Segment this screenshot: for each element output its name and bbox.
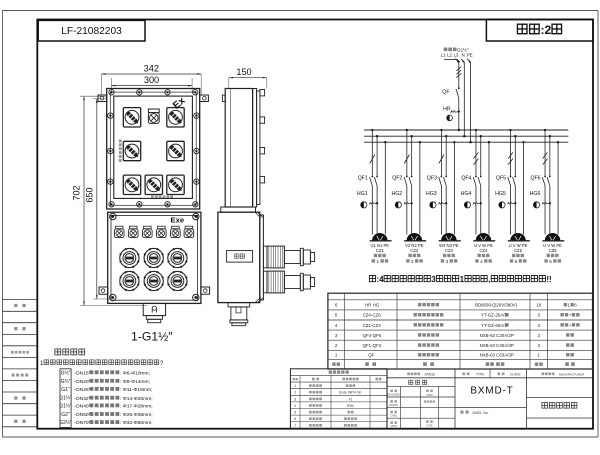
svg-text:BXMD-T: BXMD-T xyxy=(470,386,513,397)
svg-text:MANUFACTURER: MANUFACTURER xyxy=(559,372,585,376)
svg-text:5: 5 xyxy=(294,411,296,415)
svg-text:4: 4 xyxy=(294,404,296,408)
svg-text:G¾″: G¾″ xyxy=(61,379,71,385)
svg-text:QF3: QF3 xyxy=(427,175,437,181)
svg-text:1: 1 xyxy=(294,384,296,388)
svg-text:-DN20″: -DN20″ xyxy=(75,379,91,385)
svg-text:QF4-QF6: QF4-QF6 xyxy=(363,333,382,338)
svg-text:2: 2 xyxy=(294,391,296,395)
svg-text:: Φ11-Φ18mm;: : Φ11-Φ18mm; xyxy=(120,387,152,393)
svg-text:HG5: HG5 xyxy=(495,191,506,197)
svg-text:QF: QF xyxy=(368,353,374,358)
svg-text:DESIGNED: DESIGNED xyxy=(387,393,400,396)
svg-text::4: :4 xyxy=(377,275,385,284)
svg-text:QF4: QF4 xyxy=(461,175,471,181)
svg-text:300: 300 xyxy=(144,75,159,85)
svg-text:G½″: G½″ xyxy=(61,369,71,376)
svg-text:YT-GZ-25A/3: YT-GZ-25A/3 xyxy=(481,313,507,318)
svg-text:CZ4: CZ4 xyxy=(479,248,488,253)
svg-text:L3: L3 xyxy=(454,53,459,58)
svg-text:HG3: HG3 xyxy=(426,191,437,197)
svg-text:,: , xyxy=(488,275,490,284)
svg-text:1: 1 xyxy=(460,275,465,284)
svg-text:150: 150 xyxy=(236,67,251,77)
svg-text:!!: !! xyxy=(546,275,551,284)
svg-text:QF: QF xyxy=(442,89,449,95)
svg-text:16: 16 xyxy=(536,303,541,308)
svg-text:G2½″: G2½″ xyxy=(59,419,72,426)
svg-text:CZ6: CZ6 xyxy=(549,248,558,253)
svg-text:NXB-63 C40A/3P: NXB-63 C40A/3P xyxy=(480,343,514,348)
svg-text:: Φ14-Φ25mm;: : Φ14-Φ25mm; xyxy=(120,396,153,402)
svg-text:L2: L2 xyxy=(447,53,452,58)
svg-text:-DN15″: -DN15″ xyxy=(75,370,91,376)
svg-text:-DN40″: -DN40″ xyxy=(75,404,91,410)
svg-text:HG6: HG6 xyxy=(530,191,541,197)
svg-text:QF2: QF2 xyxy=(392,175,402,181)
svg-text:G1¼″: G1¼″ xyxy=(59,396,72,402)
svg-text:CLASS: CLASS xyxy=(510,372,520,376)
svg-text:HR HG: HR HG xyxy=(365,303,380,308)
svg-text:-DN50″: -DN50″ xyxy=(75,412,91,418)
svg-text:YT-GZ-60A/4: YT-GZ-60A/4 xyxy=(481,323,507,328)
svg-text:CHKD: CHKD xyxy=(390,415,397,418)
svg-text:G2″: G2″ xyxy=(61,412,70,418)
svg-text:NXB-63 C20A/2P: NXB-63 C20A/2P xyxy=(480,333,514,338)
svg-text:6: 6 xyxy=(294,417,296,421)
svg-text:BD8030-(220V/380V): BD8030-(220V/380V) xyxy=(475,303,518,308)
svg-text:APPD: APPD xyxy=(390,425,397,428)
svg-text:CZ1-CZ3: CZ1-CZ3 xyxy=(363,323,382,328)
svg-text:342: 342 xyxy=(144,64,159,74)
svg-text:+: + xyxy=(569,313,572,318)
svg-text:-DN25″: -DN25″ xyxy=(75,387,91,393)
svg-text:: Φ9-Φ14mm;: : Φ9-Φ14mm; xyxy=(120,379,150,385)
svg-text:HG2: HG2 xyxy=(391,191,402,197)
svg-text:1-G1½″: 1-G1½″ xyxy=(131,330,173,344)
svg-text:+: + xyxy=(569,323,572,328)
svg-text:Exde IIBT4 Gb: Exde IIBT4 Gb xyxy=(339,391,361,395)
svg-text:7: 7 xyxy=(294,424,296,428)
svg-text:NXB-63 C63A/3P: NXB-63 C63A/3P xyxy=(480,353,514,358)
svg-text:HR: HR xyxy=(443,107,451,113)
svg-text:CZ2: CZ2 xyxy=(410,248,419,253)
svg-text:STAGE: STAGE xyxy=(425,372,436,376)
svg-text:DRAWN: DRAWN xyxy=(389,404,398,407)
svg-text:HG4: HG4 xyxy=(461,191,472,197)
svg-text:650: 650 xyxy=(84,187,94,202)
svg-text:APPR: APPR xyxy=(426,394,433,397)
svg-text:CZ1: CZ1 xyxy=(376,248,385,253)
svg-text:CZ4-CZ6: CZ4-CZ6 xyxy=(363,313,382,318)
svg-text:: Φ25-Φ38mm;: : Φ25-Φ38mm; xyxy=(120,412,153,418)
svg-text:IP54: IP54 xyxy=(347,404,354,408)
svg-text:G1½″: G1½″ xyxy=(457,46,469,52)
svg-text:: Φ6-Φ10mm;: : Φ6-Φ10mm; xyxy=(120,370,150,376)
svg-text:Exe: Exe xyxy=(171,216,185,225)
svg-text:QF6: QF6 xyxy=(530,175,540,181)
svg-text:: Φ17-Φ28mm;: : Φ17-Φ28mm; xyxy=(120,404,153,410)
svg-text:L1: L1 xyxy=(441,53,446,58)
svg-text:-DN32″: -DN32″ xyxy=(75,396,91,402)
svg-text:QF1-QF3: QF1-QF3 xyxy=(363,343,382,348)
svg-text:CZ3: CZ3 xyxy=(445,248,454,253)
svg-text::2: :2 xyxy=(541,23,552,37)
svg-text:: Φ32-Φ50mm;: : Φ32-Φ50mm; xyxy=(120,420,153,426)
svg-text:QF1: QF1 xyxy=(358,175,368,181)
svg-text:TYPE: TYPE xyxy=(476,372,484,376)
svg-text:702: 702 xyxy=(72,185,82,200)
svg-text:3: 3 xyxy=(431,275,436,284)
svg-text:N: N xyxy=(461,53,464,58)
svg-text:3: 3 xyxy=(294,397,296,401)
svg-text:-DN70″: -DN70″ xyxy=(75,420,91,426)
svg-text:DATE: DATE xyxy=(426,425,433,428)
svg-text:F1: F1 xyxy=(349,397,353,401)
svg-text:G1½″: G1½″ xyxy=(59,402,72,409)
svg-text:LF-21082203: LF-21082203 xyxy=(61,26,122,37)
svg-text:PE: PE xyxy=(467,53,473,58)
svg-text:QF5: QF5 xyxy=(496,175,506,181)
svg-text:DWG. No.: DWG. No. xyxy=(473,411,489,415)
svg-text:HG1: HG1 xyxy=(357,191,368,197)
svg-text:G1″: G1″ xyxy=(61,387,70,393)
svg-text:CZ5: CZ5 xyxy=(514,248,523,253)
